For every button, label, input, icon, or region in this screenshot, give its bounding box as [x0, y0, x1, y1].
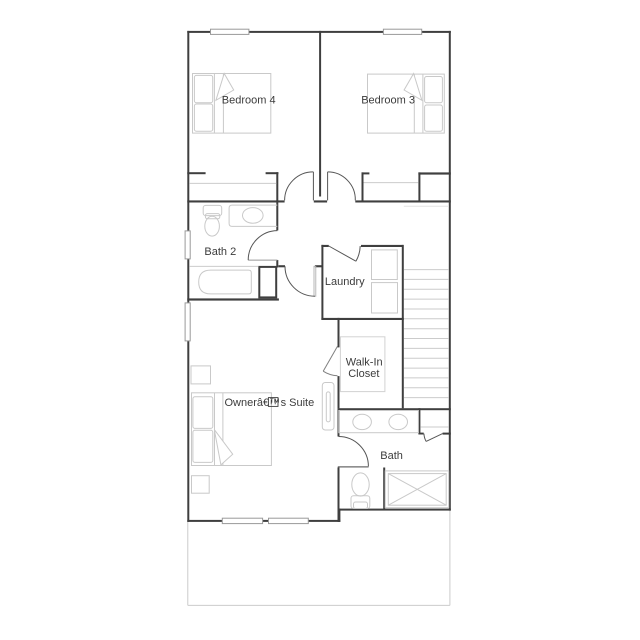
svg-text:Walk-In: Walk-In [346, 357, 383, 369]
svg-text:Bath 2: Bath 2 [204, 246, 236, 258]
svg-text:Bedroom 3: Bedroom 3 [361, 95, 415, 107]
svg-text:Closet: Closet [348, 368, 379, 380]
svg-text:Bedroom 4: Bedroom 4 [222, 95, 276, 107]
svg-text:Ownerâ€™: Ownerâ€™ [225, 397, 281, 409]
svg-text:Laundry: Laundry [325, 276, 365, 288]
svg-text:Bath: Bath [380, 450, 403, 462]
svg-text:s Suite: s Suite [281, 397, 315, 409]
